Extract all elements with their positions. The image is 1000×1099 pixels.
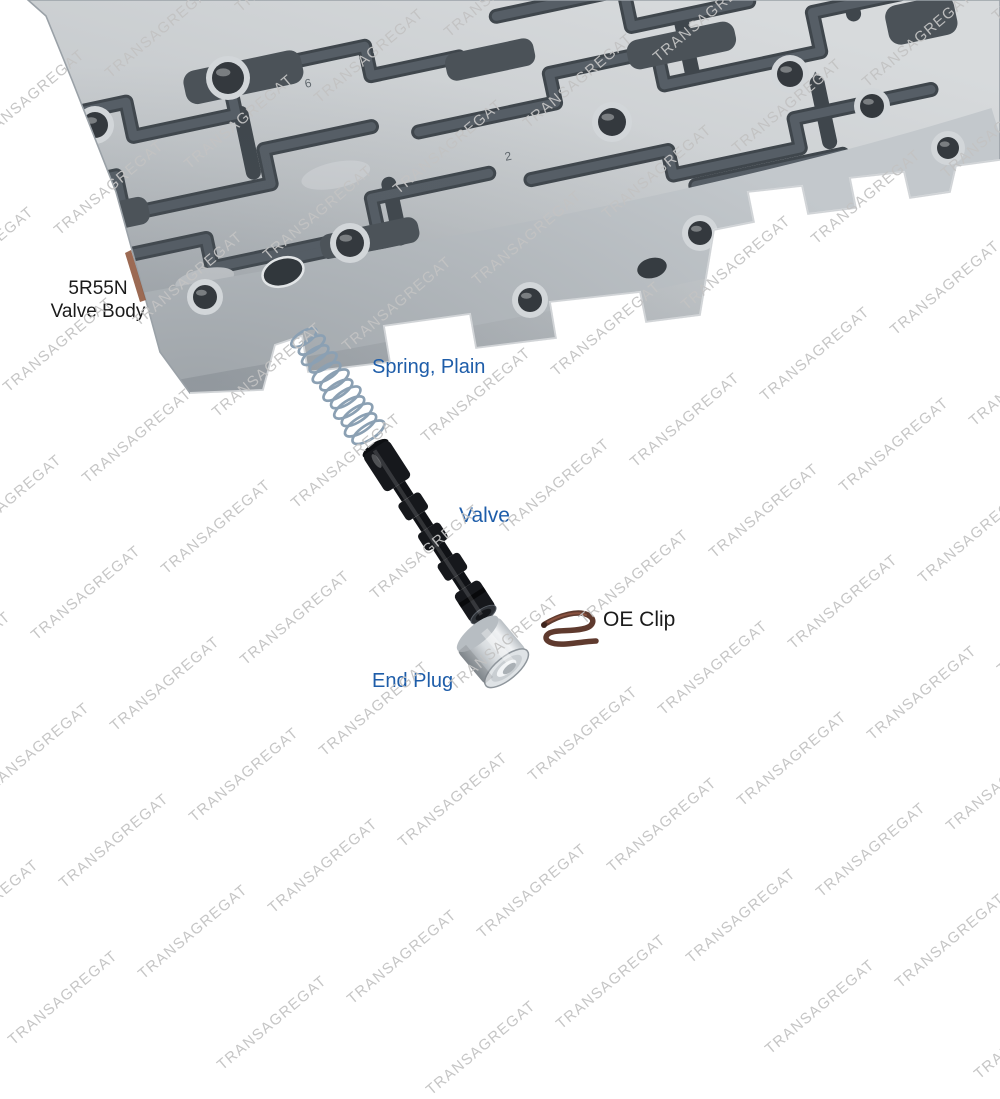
label-oe-clip: OE Clip	[603, 608, 675, 632]
product-photo: 6 2 4	[0, 0, 1000, 1000]
parts-illustration: 6 2 4	[0, 0, 1000, 1000]
end-plug-image	[451, 609, 534, 694]
label-spring: Spring, Plain	[372, 356, 485, 379]
label-valve-body-line1: 5R55N	[28, 277, 168, 300]
label-end-plug: End Plug	[372, 670, 453, 693]
label-valve-body-line2: Valve Body	[28, 300, 168, 323]
watermark-text: TRANSAGREGAT	[423, 997, 539, 1098]
valve-body-image: 6 2 4	[0, 0, 1000, 420]
oe-clip-image	[541, 613, 596, 644]
valve-image	[359, 435, 499, 628]
label-valve-body: 5R55N Valve Body	[28, 277, 168, 323]
label-valve: Valve	[459, 504, 510, 528]
